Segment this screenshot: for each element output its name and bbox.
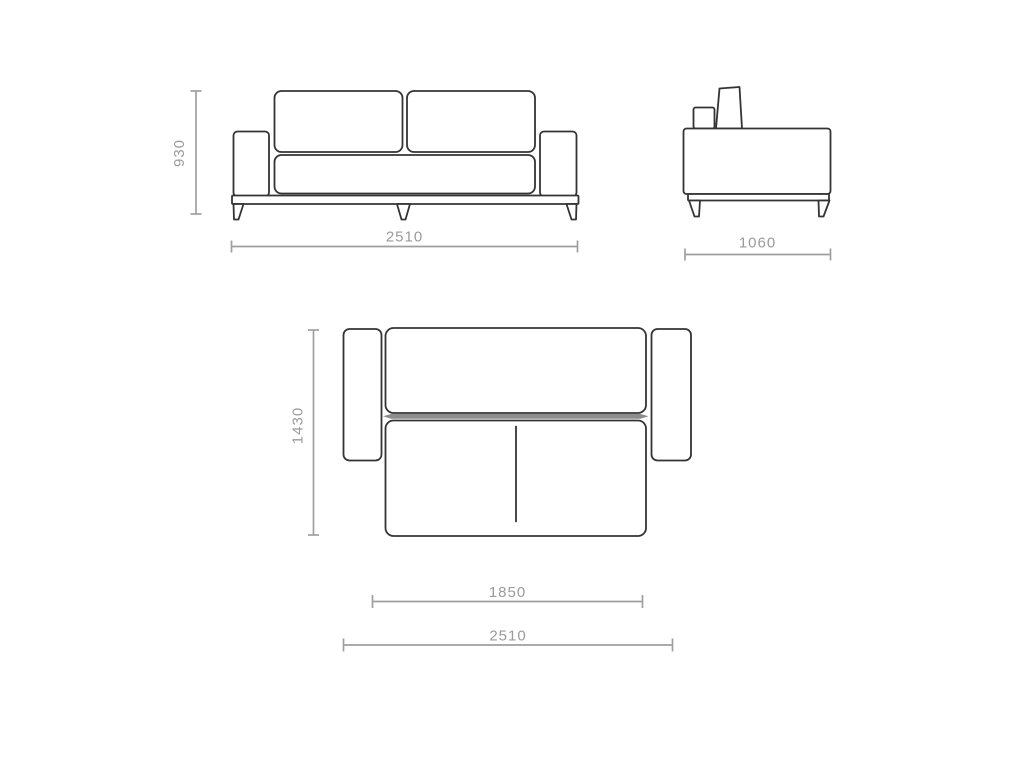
side-armrest-top (694, 108, 715, 129)
side-depth-label: 1060 (739, 235, 776, 252)
side-view: 1060 (684, 87, 831, 261)
front-leg-center (397, 204, 410, 220)
top-backrest-section (386, 328, 647, 413)
front-height-dimension: 930 (171, 91, 202, 214)
top-width-dimension: 2510 (344, 628, 673, 652)
front-base (232, 196, 579, 205)
top-depth-label: 1430 (290, 407, 307, 444)
front-armrest-right (540, 132, 577, 197)
side-leg-front (689, 201, 700, 217)
front-view: 930 2510 (171, 91, 579, 253)
top-view: 1430 1850 2510 (290, 328, 692, 652)
front-seat-cushion (275, 155, 536, 194)
front-leg-right (567, 204, 577, 220)
sofa-dimension-drawing: 930 2510 (0, 0, 1024, 768)
side-base (688, 194, 829, 201)
top-mattress-width-dimension: 1850 (373, 584, 643, 608)
side-body (684, 129, 831, 195)
front-width-label: 2510 (386, 229, 423, 246)
front-height-label: 930 (171, 139, 188, 167)
top-armrest-right (652, 329, 692, 461)
front-back-cushion-right (407, 91, 535, 152)
side-leg-back (819, 201, 830, 217)
side-back-cushion-tilted (716, 87, 742, 129)
front-armrest-left (234, 132, 270, 197)
front-width-dimension: 2510 (232, 229, 578, 253)
top-depth-dimension: 1430 (290, 330, 320, 535)
top-fold-divider (383, 414, 649, 419)
side-depth-dimension: 1060 (685, 235, 831, 261)
top-width-label: 2510 (489, 628, 526, 645)
front-back-cushion-left (275, 91, 403, 152)
top-mattress-width-label: 1850 (489, 584, 526, 601)
front-leg-left (234, 204, 244, 220)
top-armrest-left (344, 329, 382, 461)
drawing-svg: 930 2510 (0, 0, 1024, 768)
